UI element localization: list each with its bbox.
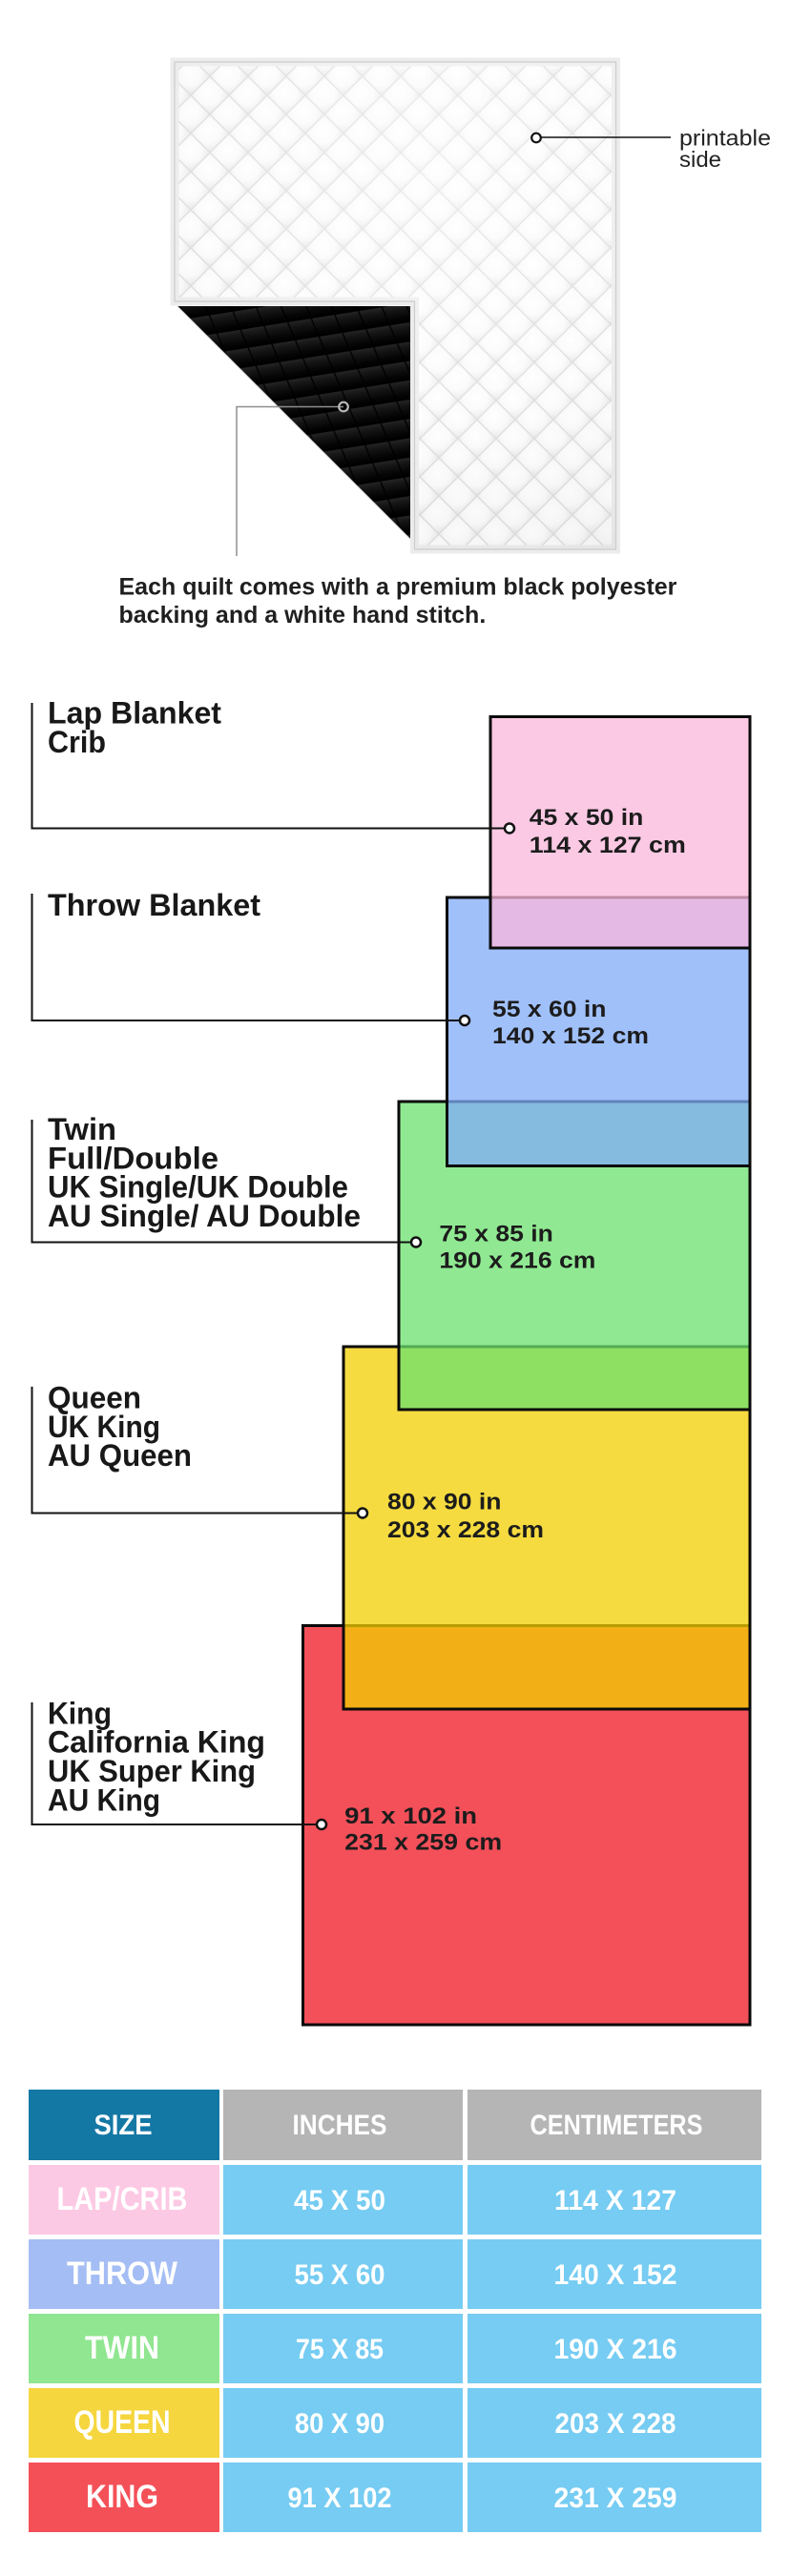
svg-text:AU Queen: AU Queen bbox=[48, 1438, 192, 1473]
svg-text:231 X 259: 231 X 259 bbox=[554, 2483, 677, 2514]
svg-text:190 x 216 cm: 190 x 216 cm bbox=[439, 1248, 595, 1274]
svg-text:55 x 60 in: 55 x 60 in bbox=[492, 997, 607, 1022]
svg-text:Each quilt comes with a premiu: Each quilt comes with a premium black po… bbox=[119, 573, 677, 600]
svg-text:114 X 127: 114 X 127 bbox=[554, 2185, 676, 2216]
svg-text:91 X 102: 91 X 102 bbox=[288, 2483, 392, 2514]
svg-text:AU Single/ AU Double: AU Single/ AU Double bbox=[48, 1199, 361, 1233]
svg-text:LAP/CRIB: LAP/CRIB bbox=[57, 2181, 188, 2217]
svg-text:INCHES: INCHES bbox=[293, 2110, 387, 2141]
svg-text:190 X 216: 190 X 216 bbox=[554, 2334, 677, 2365]
svg-text:side: side bbox=[679, 147, 721, 172]
svg-text:114 x 127 cm: 114 x 127 cm bbox=[530, 833, 686, 858]
svg-text:45 X 50: 45 X 50 bbox=[294, 2185, 385, 2216]
svg-text:SIZE: SIZE bbox=[94, 2110, 153, 2141]
svg-text:140 X 152: 140 X 152 bbox=[554, 2259, 677, 2291]
svg-text:203 X 228: 203 X 228 bbox=[555, 2408, 676, 2440]
svg-text:75 X 85: 75 X 85 bbox=[296, 2334, 384, 2365]
svg-text:91 x 102 in: 91 x 102 in bbox=[344, 1803, 477, 1829]
svg-text:203 x 228 cm: 203 x 228 cm bbox=[387, 1517, 544, 1543]
svg-text:CENTIMETERS: CENTIMETERS bbox=[530, 2110, 703, 2141]
svg-text:75 x 85 in: 75 x 85 in bbox=[439, 1221, 553, 1247]
svg-text:55 X 60: 55 X 60 bbox=[295, 2259, 385, 2291]
svg-text:backing and a white hand stitc: backing and a white hand stitch. bbox=[119, 602, 487, 629]
svg-text:231 x 259 cm: 231 x 259 cm bbox=[344, 1830, 502, 1856]
svg-text:80 x 90 in: 80 x 90 in bbox=[387, 1490, 502, 1515]
svg-text:Throw Blanket: Throw Blanket bbox=[48, 888, 260, 922]
svg-text:45 x 50 in: 45 x 50 in bbox=[530, 805, 644, 831]
svg-text:KING: KING bbox=[86, 2479, 158, 2515]
svg-text:TWIN: TWIN bbox=[85, 2330, 159, 2366]
svg-text:Crib: Crib bbox=[48, 725, 106, 759]
svg-text:THROW: THROW bbox=[67, 2256, 178, 2292]
svg-text:140 x 152 cm: 140 x 152 cm bbox=[492, 1023, 649, 1049]
svg-text:80 X 90: 80 X 90 bbox=[295, 2408, 385, 2440]
svg-text:AU King: AU King bbox=[48, 1783, 160, 1817]
svg-text:QUEEN: QUEEN bbox=[74, 2404, 171, 2441]
